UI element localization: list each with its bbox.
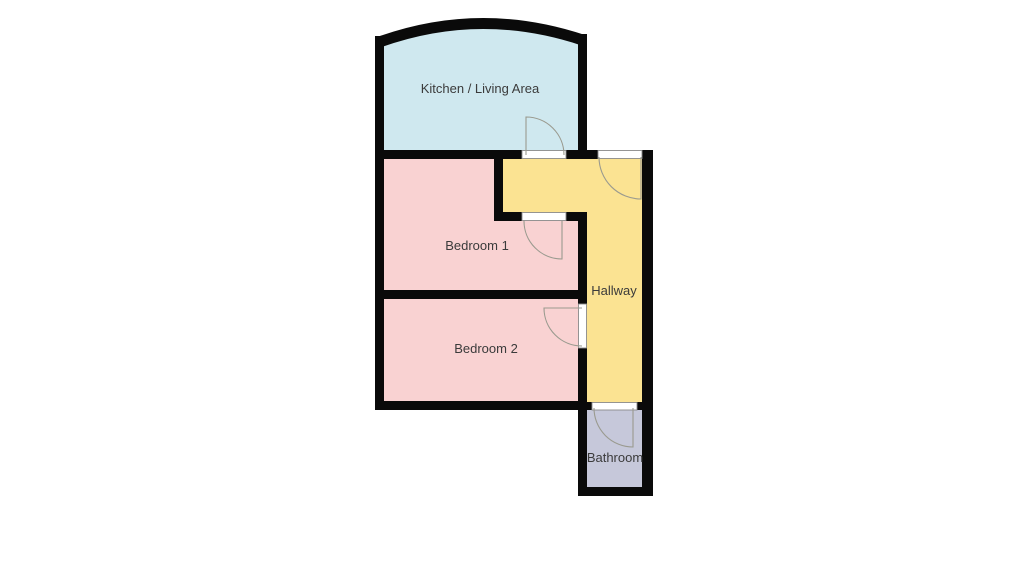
bedroom-1-label: Bedroom 1	[445, 238, 509, 253]
kitchen-living-area-label: Kitchen / Living Area	[421, 81, 540, 96]
wall-bottom-outer	[375, 401, 587, 410]
wall-right-outer	[642, 150, 653, 496]
wall-bathroom-left	[578, 401, 587, 496]
wall-bedroom-divider	[375, 290, 587, 299]
bedroom-2-door-frame	[579, 304, 587, 348]
wall-bedroom1-top-left	[494, 212, 522, 221]
bathroom-door-frame	[592, 403, 637, 411]
wall-kitchen-right	[578, 34, 587, 159]
wall-bathroom-bottom	[578, 487, 653, 496]
wall-hallway-notch	[494, 150, 503, 221]
bathroom-label: Bathroom	[587, 450, 643, 465]
floor-plan-canvas: Kitchen / Living Area Bedroom 1 Bedroom …	[0, 0, 1024, 576]
bedroom-2-label: Bedroom 2	[454, 341, 518, 356]
bedroom-1-door-frame	[522, 213, 566, 221]
entry-door-frame	[598, 151, 642, 159]
wall-top-mid-segment	[566, 150, 598, 159]
room-bathroom	[582, 406, 648, 492]
kitchen-door-frame	[522, 151, 566, 159]
hallway-label: Hallway	[591, 283, 637, 298]
wall-bedrooms-right-lower	[578, 348, 587, 410]
wall-left-outer	[375, 36, 384, 410]
floor-plan-page: Kitchen / Living Area Bedroom 1 Bedroom …	[0, 0, 1024, 576]
